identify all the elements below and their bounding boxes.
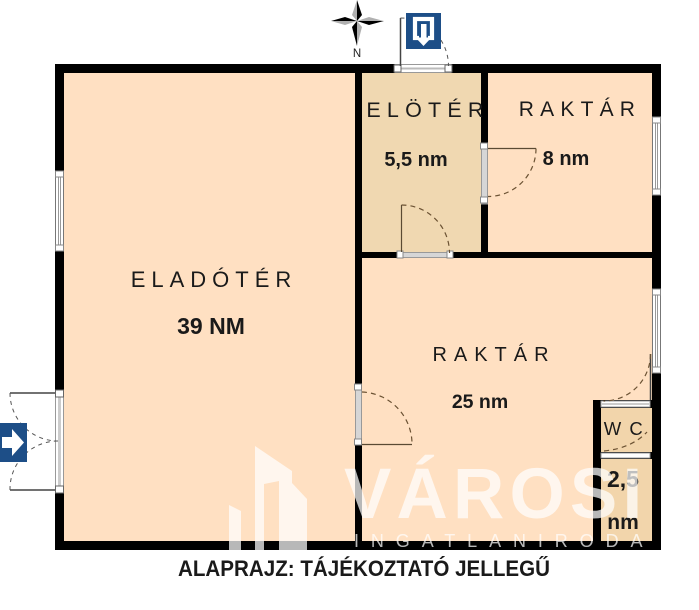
svg-text:N: N	[353, 48, 361, 60]
svg-text:8 nm: 8 nm	[543, 148, 590, 170]
svg-text:W C: W C	[604, 418, 644, 439]
svg-text:25 nm: 25 nm	[452, 391, 508, 413]
svg-text:ELADÓTÉR: ELADÓTÉR	[131, 267, 298, 292]
svg-text:39 NM: 39 NM	[177, 313, 245, 339]
svg-text:5,5 nm: 5,5 nm	[384, 149, 447, 171]
svg-text:RAKTÁR: RAKTÁR	[519, 98, 641, 121]
svg-text:VÁROSI: VÁROSI	[344, 455, 647, 534]
svg-text:INGATLANIRODA: INGATLANIRODA	[354, 531, 654, 551]
svg-text:ALAPRAJZ: TÁJÉKOZTATÓ JELLEGŰ: ALAPRAJZ: TÁJÉKOZTATÓ JELLEGŰ	[178, 556, 550, 581]
svg-text:ELÖTÉR: ELÖTÉR	[366, 97, 489, 122]
svg-text:RAKTÁR: RAKTÁR	[432, 343, 555, 366]
